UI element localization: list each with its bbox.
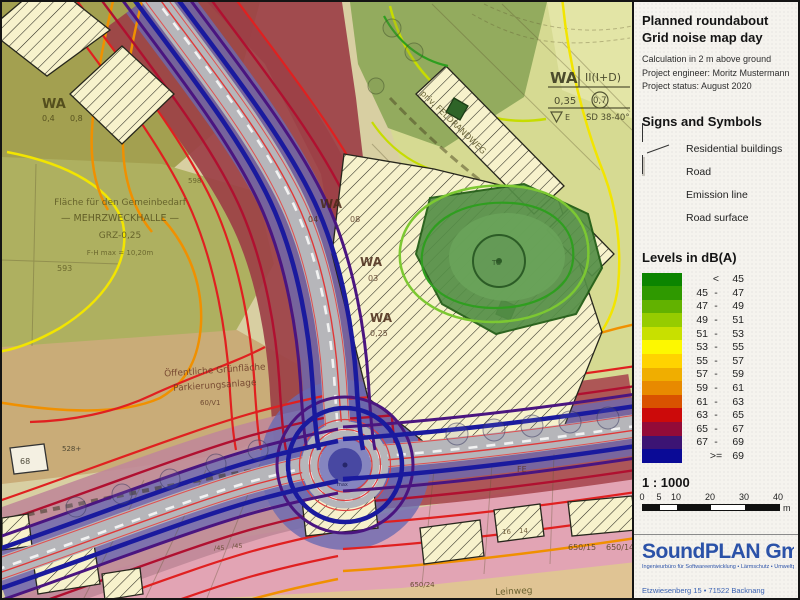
level-op: - bbox=[708, 423, 724, 435]
map-meta: Calculation in 2 m above ground Project … bbox=[642, 53, 794, 94]
level-hi: 57 bbox=[724, 355, 744, 367]
level-row: 51-53 bbox=[642, 327, 794, 341]
building bbox=[494, 504, 544, 542]
level-row: 47-49 bbox=[642, 300, 794, 314]
map-label: max bbox=[337, 482, 348, 488]
map-label: 0,4 bbox=[42, 114, 55, 123]
level-hi: 45 bbox=[724, 273, 744, 285]
level-color-swatch bbox=[642, 327, 682, 341]
map-canvas[interactable]: WA 0,4 0,8 Fläche für den Gemeinbedarf —… bbox=[2, 2, 632, 598]
residential-buildings-icon bbox=[642, 124, 686, 174]
scale-tick: 5 bbox=[656, 492, 661, 502]
map-label: WA bbox=[370, 311, 393, 325]
level-color-swatch bbox=[642, 273, 682, 287]
map-label: 16 bbox=[502, 528, 511, 536]
level-color-swatch bbox=[642, 422, 682, 436]
legend-panel: Planned roundabout Grid noise map day Ca… bbox=[632, 2, 798, 598]
level-lo: 57 bbox=[682, 368, 708, 380]
scale-ticks: 0510203040 bbox=[642, 492, 778, 503]
panel-divider bbox=[634, 534, 798, 535]
map-label: 593 bbox=[57, 264, 72, 273]
brand-tagline: Ingenieurbüro für Softwareentwicklung • … bbox=[642, 564, 794, 570]
level-op: < bbox=[708, 273, 724, 285]
level-color-swatch bbox=[642, 449, 682, 463]
level-color-swatch bbox=[642, 368, 682, 382]
legend-item-label: Road surface bbox=[686, 212, 748, 224]
legend-item-emission-line: Emission line bbox=[642, 184, 794, 207]
level-color-swatch bbox=[642, 381, 682, 395]
noise-map-sheet: WA 0,4 0,8 Fläche für den Gemeinbedarf —… bbox=[0, 0, 800, 600]
map-label: 650/15 bbox=[568, 543, 596, 552]
level-hi: 53 bbox=[724, 328, 744, 340]
level-hi: 47 bbox=[724, 287, 744, 299]
level-op: - bbox=[708, 341, 724, 353]
signs-legend: Residential buildings Road Emission line… bbox=[642, 138, 794, 230]
soundplan-logo: SoundPLAN GmbH bbox=[642, 540, 794, 564]
level-lo: 67 bbox=[682, 436, 708, 448]
level-color-swatch bbox=[642, 436, 682, 450]
level-op: - bbox=[708, 287, 724, 299]
level-op: >= bbox=[708, 450, 724, 462]
map-label: WA bbox=[360, 255, 383, 269]
brand-block: SoundPLAN GmbH Ingenieurbüro für Softwar… bbox=[642, 540, 794, 598]
level-op: - bbox=[708, 436, 724, 448]
level-op: - bbox=[708, 328, 724, 340]
level-lo: 63 bbox=[682, 409, 708, 421]
brand-address: Etzwiesenberg 15 • 71522 Backnang Tel. 0… bbox=[642, 586, 794, 598]
building bbox=[102, 568, 143, 598]
map-label: — MEHRZWECKHALLE — bbox=[61, 213, 179, 224]
brand-street: Etzwiesenberg 15 • 71522 Backnang bbox=[642, 586, 794, 597]
map-scale-ratio: 1 : 1000 bbox=[642, 475, 794, 490]
level-op: - bbox=[708, 382, 724, 394]
level-hi: 69 bbox=[724, 436, 744, 448]
map-label: F-H max = 10,20m bbox=[87, 249, 154, 257]
level-hi: 65 bbox=[724, 409, 744, 421]
level-color-swatch bbox=[642, 395, 682, 409]
level-op: - bbox=[708, 409, 724, 421]
level-lo: 45 bbox=[682, 287, 708, 299]
level-op: - bbox=[708, 355, 724, 367]
level-row: 57-59 bbox=[642, 368, 794, 382]
scale-unit: m bbox=[783, 503, 791, 513]
map-label: 60/V1 bbox=[200, 399, 221, 407]
map-title-line1: Planned roundabout bbox=[642, 12, 794, 29]
level-hi: 67 bbox=[724, 423, 744, 435]
level-hi: 63 bbox=[724, 396, 744, 408]
map-label: 08 bbox=[350, 215, 360, 224]
level-lo: 61 bbox=[682, 396, 708, 408]
level-hi: 61 bbox=[724, 382, 744, 394]
map-label: Fläche für den Gemeinbedarf bbox=[54, 198, 187, 208]
level-op: - bbox=[708, 396, 724, 408]
level-lo: 47 bbox=[682, 300, 708, 312]
map-label: E bbox=[565, 113, 570, 122]
map-label: 0,7 bbox=[593, 96, 607, 106]
level-lo: 65 bbox=[682, 423, 708, 435]
map-label: 68 bbox=[20, 457, 30, 466]
level-lo: 59 bbox=[682, 382, 708, 394]
level-row: 55-57 bbox=[642, 354, 794, 368]
level-color-swatch bbox=[642, 408, 682, 422]
level-lo: 53 bbox=[682, 341, 708, 353]
map-label: 0,35 bbox=[554, 96, 576, 107]
level-hi: 51 bbox=[724, 314, 744, 326]
brand-phone: Tel. 07191/9144-0 • Fax: 07191/9144-24 bbox=[642, 597, 794, 598]
level-row: <45 bbox=[642, 273, 794, 287]
level-color-swatch bbox=[642, 286, 682, 300]
scale-tick: 10 bbox=[671, 492, 681, 502]
legend-item-label: Residential buildings bbox=[686, 143, 782, 155]
map-title: Planned roundabout Grid noise map day bbox=[642, 12, 794, 46]
map-label: 0,25 bbox=[370, 329, 388, 338]
level-color-swatch bbox=[642, 313, 682, 327]
map-label: 04 bbox=[308, 215, 318, 224]
level-row: 45-47 bbox=[642, 286, 794, 300]
meta-calculation: Calculation in 2 m above ground bbox=[642, 53, 794, 67]
level-row: >=69 bbox=[642, 449, 794, 463]
level-row: 61-63 bbox=[642, 395, 794, 409]
levels-heading: Levels in dB(A) bbox=[642, 250, 794, 265]
map-label: 528+ bbox=[62, 445, 81, 453]
map-label: 598 bbox=[188, 177, 201, 185]
levels-table: <4545-4747-4949-5151-5353-5555-5757-5959… bbox=[642, 273, 794, 463]
level-row: 59-61 bbox=[642, 381, 794, 395]
level-row: 53-55 bbox=[642, 340, 794, 354]
level-row: 49-51 bbox=[642, 313, 794, 327]
level-row: 63-65 bbox=[642, 408, 794, 422]
legend-item-label: Road bbox=[686, 166, 711, 178]
map-label: 03 bbox=[368, 274, 378, 283]
map-label: SD 38-40° bbox=[586, 113, 630, 123]
level-hi: 69 bbox=[724, 450, 744, 462]
scale-tick: 30 bbox=[739, 492, 749, 502]
map-label: 650/14 bbox=[606, 543, 632, 552]
scale-bar: 0510203040 m bbox=[642, 492, 798, 522]
level-lo: 49 bbox=[682, 314, 708, 326]
map-label: /45 bbox=[232, 542, 242, 550]
map-label: WA bbox=[550, 69, 578, 87]
map-label: WA bbox=[320, 197, 343, 211]
scale-tick: 20 bbox=[705, 492, 715, 502]
scale-bar-segments bbox=[642, 504, 780, 511]
map-label: Leinweg bbox=[495, 586, 533, 598]
scale-tick: 0 bbox=[639, 492, 644, 502]
map-label: 650/24 bbox=[410, 581, 435, 589]
building bbox=[568, 496, 632, 536]
map-label: GRZ-0,25 bbox=[99, 231, 142, 241]
map-label: /45 bbox=[214, 544, 224, 552]
level-hi: 59 bbox=[724, 368, 744, 380]
noise-map: WA 0,4 0,8 Fläche für den Gemeinbedarf —… bbox=[2, 2, 632, 598]
map-label: FE bbox=[517, 465, 527, 474]
meta-engineer: Project engineer: Moritz Mustermann bbox=[642, 67, 794, 81]
map-label: 0,8 bbox=[70, 114, 83, 123]
level-lo: 51 bbox=[682, 328, 708, 340]
level-color-swatch bbox=[642, 300, 682, 314]
level-hi: 49 bbox=[724, 300, 744, 312]
legend-item-road-surface: Road surface bbox=[642, 207, 794, 230]
map-label: 14 bbox=[519, 527, 528, 535]
legend-item-label: Emission line bbox=[686, 189, 748, 201]
legend-item-residential: Residential buildings bbox=[642, 138, 794, 161]
level-row: 67-69 bbox=[642, 436, 794, 450]
level-color-swatch bbox=[642, 340, 682, 354]
building bbox=[420, 520, 484, 564]
level-op: - bbox=[708, 368, 724, 380]
level-hi: 55 bbox=[724, 341, 744, 353]
level-color-swatch bbox=[642, 354, 682, 368]
level-row: 65-67 bbox=[642, 422, 794, 436]
level-lo: 55 bbox=[682, 355, 708, 367]
level-op: - bbox=[708, 300, 724, 312]
meta-status: Project status: August 2020 bbox=[642, 80, 794, 94]
map-label: TC bbox=[491, 259, 501, 267]
map-label: WA bbox=[42, 97, 66, 112]
level-op: - bbox=[708, 314, 724, 326]
map-label: II(I+D) bbox=[585, 71, 621, 84]
map-title-line2: Grid noise map day bbox=[642, 29, 794, 46]
scale-tick: 40 bbox=[773, 492, 783, 502]
